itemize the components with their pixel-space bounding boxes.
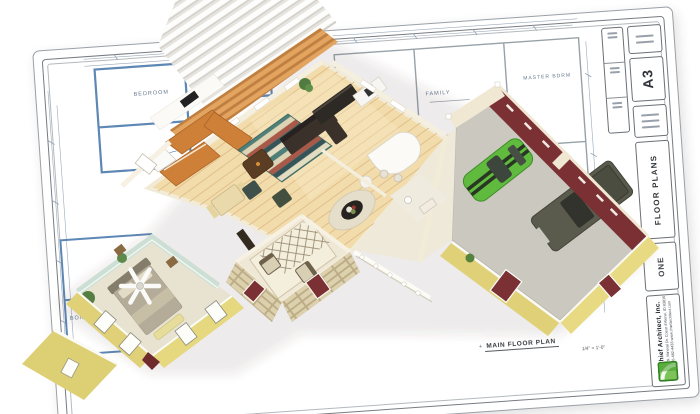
house-3d-render: [0, 0, 700, 414]
bar-stool: [380, 170, 388, 178]
shrub: [466, 254, 475, 263]
bar-stool: [394, 174, 402, 182]
screenshot-root: BEDROOM FAMILY MASTER BDRM BONUS +MAIN F…: [0, 0, 700, 414]
toilet: [405, 197, 412, 204]
